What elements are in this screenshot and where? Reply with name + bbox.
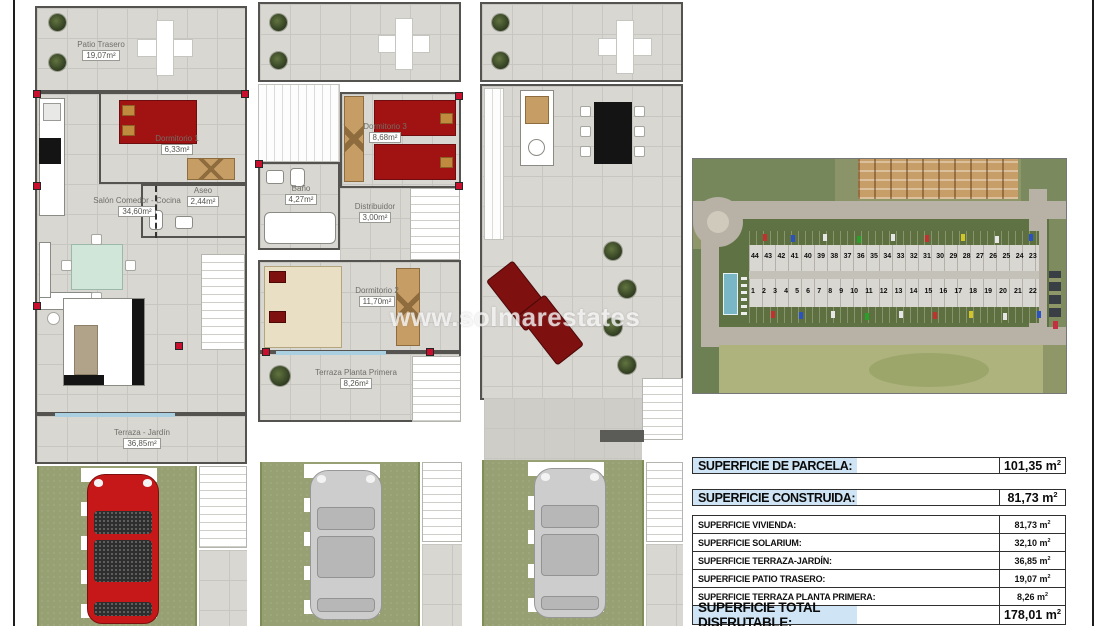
site-unit-number: 43: [764, 253, 772, 260]
unit-numbers-top: 4443424140393837363534333231302928272625…: [751, 251, 1037, 262]
parking-strip-bottom: [749, 307, 1039, 323]
site-unit-number: 31: [923, 253, 931, 260]
gray-car-top-view: [534, 468, 606, 618]
table-row-solarium: SUPERFICIE SOLARIUM: 32,10 m2: [693, 534, 1065, 552]
site-unit-number: 3: [773, 288, 777, 295]
site-unit-number: 32: [910, 253, 918, 260]
site-unit-number: 15: [925, 288, 933, 295]
site-unit-number: 22: [1029, 288, 1037, 295]
red-vehicle: [1053, 321, 1058, 329]
plant-icon: [492, 14, 509, 31]
solarium-terrace: [480, 84, 683, 400]
table-row-construida: SUPERFICIE CONSTRUIDA: 81,73 m2: [692, 489, 1066, 506]
gray-car-top-view: [310, 470, 382, 620]
row-value: 101,35 m2: [999, 458, 1065, 473]
watermark: www.solmarestates: [390, 302, 690, 333]
row-label: SUPERFICIE DE PARCELA:: [693, 458, 857, 473]
site-unit-number: 38: [830, 253, 838, 260]
distribuidor: Distribuidor 3,00m²: [340, 188, 410, 260]
parked-cars: [771, 311, 775, 318]
site-unit-number: 14: [910, 288, 918, 295]
brochure-page: Patio Trasero 19,07m² Dormitorio 1 6,33m…: [0, 0, 1110, 626]
site-unit-number: 13: [895, 288, 903, 295]
staircase: [642, 378, 683, 440]
pillar-marker: [175, 342, 183, 350]
site-unit-number: 37: [844, 253, 852, 260]
room-label-dormitorio3: Dormitorio 3 8,68m²: [350, 122, 420, 143]
staircase: [410, 188, 460, 260]
site-unit-number: 40: [804, 253, 812, 260]
pillar-marker: [33, 90, 41, 98]
site-unit-number: 23: [1029, 253, 1037, 260]
room-label-terraza: Terraza - Jardín 36,85m²: [99, 428, 185, 449]
beam-line: [155, 186, 157, 238]
floor-plan-ground: Patio Trasero 19,07m² Dormitorio 1 6,33m…: [35, 6, 249, 626]
site-unit-number: 27: [976, 253, 984, 260]
pillar-marker: [33, 182, 41, 190]
site-unit-number: 7: [817, 288, 821, 295]
patio-table: [378, 18, 430, 70]
room-label-terraza-pp: Terraza Planta Primera 8,26m²: [300, 368, 412, 389]
table-row-terraza-jardin: SUPERFICIE TERRAZA-JARDÍN: 36,85 m2: [693, 552, 1065, 570]
plant-icon: [604, 242, 622, 260]
plant-icon: [49, 14, 66, 31]
counter-wood: [525, 96, 549, 124]
room-label-patio: Patio Trasero 19,07m²: [61, 40, 141, 61]
doormat: [600, 430, 644, 442]
site-unit-number: 28: [963, 253, 971, 260]
parked-cars: [763, 234, 767, 241]
service-lane: [749, 271, 1039, 279]
parking-strip-top: [749, 231, 1039, 245]
site-unit-number: 39: [817, 253, 825, 260]
road-bottom: [705, 327, 1067, 345]
site-unit-number: 18: [969, 288, 977, 295]
fridge: [39, 138, 61, 164]
page-border-left: [13, 0, 15, 626]
site-unit-number: 5: [795, 288, 799, 295]
plant-icon: [270, 52, 287, 69]
plant-icon: [618, 356, 636, 374]
kitchenette: [520, 90, 554, 166]
pillar-marker: [33, 302, 41, 310]
site-unit-number: 19: [984, 288, 992, 295]
site-unit-number: 16: [939, 288, 947, 295]
entry-steps: [422, 462, 462, 542]
entry-path: [199, 550, 247, 626]
pillar-marker: [255, 160, 263, 168]
row-label: SUPERFICIE TOTAL DISFRUTABLE:: [693, 606, 857, 624]
row-value: 178,01 m2: [999, 606, 1065, 624]
pillar-marker: [241, 90, 249, 98]
entry-steps: [199, 466, 247, 548]
site-unit-number: 35: [870, 253, 878, 260]
roof-over-entrance: [258, 84, 340, 162]
coffee-table: [74, 325, 98, 375]
entry-path: [422, 544, 462, 626]
wardrobe: [187, 158, 235, 180]
site-unit-number: 12: [880, 288, 888, 295]
plant-icon: [270, 366, 290, 386]
pillar-marker: [455, 92, 463, 100]
bed-double: [264, 266, 342, 348]
table-row-patio-trasero: SUPERFICIE PATIO TRASERO: 19,07 m2: [693, 570, 1065, 588]
sink: [266, 170, 284, 184]
site-unit-number: 33: [897, 253, 905, 260]
site-unit-number: 1: [751, 288, 755, 295]
site-unit-number: 30: [936, 253, 944, 260]
field: [719, 345, 1043, 394]
site-unit-number: 21: [1014, 288, 1022, 295]
site-unit-number: 25: [1002, 253, 1010, 260]
site-unit-number: 6: [806, 288, 810, 295]
entry-steps: [646, 462, 683, 542]
surface-detail-table: SUPERFICIE VIVIENDA: 81,73 m2 SUPERFICIE…: [692, 515, 1066, 607]
pillar-marker: [455, 182, 463, 190]
site-unit-number: 44: [751, 253, 759, 260]
roof-patio: [258, 2, 461, 82]
aerial-photo: 4443424140393837363534333231302928272625…: [692, 158, 1067, 394]
plant-icon: [492, 52, 509, 69]
pool-loungers: [741, 273, 747, 315]
community-pool: [723, 273, 738, 315]
pergola: [484, 88, 504, 240]
road-top: [693, 201, 1067, 219]
window-strip: [55, 413, 175, 417]
table-row-parcela: SUPERFICIE DE PARCELA: 101,35 m2: [692, 457, 1066, 474]
site-unit-number: 26: [989, 253, 997, 260]
sink: [175, 216, 193, 229]
patio-trasero: Patio Trasero 19,07m²: [35, 6, 247, 92]
staircase: [412, 356, 461, 422]
site-unit-number: 34: [883, 253, 891, 260]
patio-table: [598, 20, 652, 74]
row-value: 81,73 m2: [999, 490, 1065, 505]
red-car-top-view: [87, 474, 159, 624]
roof-patio: [480, 2, 683, 82]
site-unit-number: 36: [857, 253, 865, 260]
tv-unit: [39, 242, 51, 298]
site-unit-number: 8: [828, 288, 832, 295]
room-label-salon: Salón Comedor - Cocina 34,60m²: [81, 196, 193, 217]
plant-icon: [270, 14, 287, 31]
page-border-right: [1092, 0, 1094, 626]
neighbor-buildings: [858, 159, 1018, 199]
grass-patch: [835, 159, 859, 201]
room-label-banio: Baño 4,27m²: [274, 184, 328, 205]
stool: [47, 312, 60, 325]
site-unit-number: 42: [777, 253, 785, 260]
room-label-dormitorio1: Dormitorio 1 6,33m²: [139, 134, 215, 155]
site-unit-number: 9: [839, 288, 843, 295]
window-strip: [276, 351, 386, 355]
site-unit-number: 17: [954, 288, 962, 295]
site-unit-number: 41: [791, 253, 799, 260]
banio: Baño 4,27m²: [258, 162, 340, 250]
room-label-distribuidor: Distribuidor 3,00m²: [342, 202, 408, 223]
plant-icon: [618, 280, 636, 298]
walkway: [484, 398, 642, 460]
terraza-jardin: Terraza - Jardín 36,85m²: [35, 414, 247, 464]
site-unit-number: 4: [784, 288, 788, 295]
site-unit-number: 2: [762, 288, 766, 295]
dining-table: [71, 244, 123, 290]
staircase: [201, 254, 245, 350]
bathtub: [264, 212, 336, 244]
table-row-total: SUPERFICIE TOTAL DISFRUTABLE: 178,01 m2: [692, 605, 1066, 625]
stove-icon: [43, 103, 61, 121]
pillar-marker: [426, 348, 434, 356]
unit-numbers-bottom: 12345678910111213141516171819202122: [751, 286, 1037, 297]
bed-single: [374, 144, 456, 180]
table-row-vivienda: SUPERFICIE VIVIENDA: 81,73 m2: [693, 516, 1065, 534]
row-label: SUPERFICIE CONSTRUIDA:: [693, 490, 857, 505]
site-unit-number: 29: [950, 253, 958, 260]
pillar-marker: [262, 348, 270, 356]
entry-path: [646, 544, 683, 626]
outdoor-dining-table: [594, 102, 632, 164]
sink: [528, 139, 545, 156]
grass-patch: [693, 159, 835, 201]
roundabout: [693, 197, 743, 247]
site-unit-number: 20: [999, 288, 1007, 295]
site-unit-number: 10: [850, 288, 858, 295]
terraza-planta-primera: Terraza Planta Primera 8,26m²: [258, 352, 461, 422]
patio-table: [137, 20, 193, 76]
site-unit-number: 24: [1016, 253, 1024, 260]
sofa: [63, 298, 145, 386]
parked-vehicles: [1049, 271, 1061, 317]
site-unit-number: 11: [865, 288, 872, 295]
